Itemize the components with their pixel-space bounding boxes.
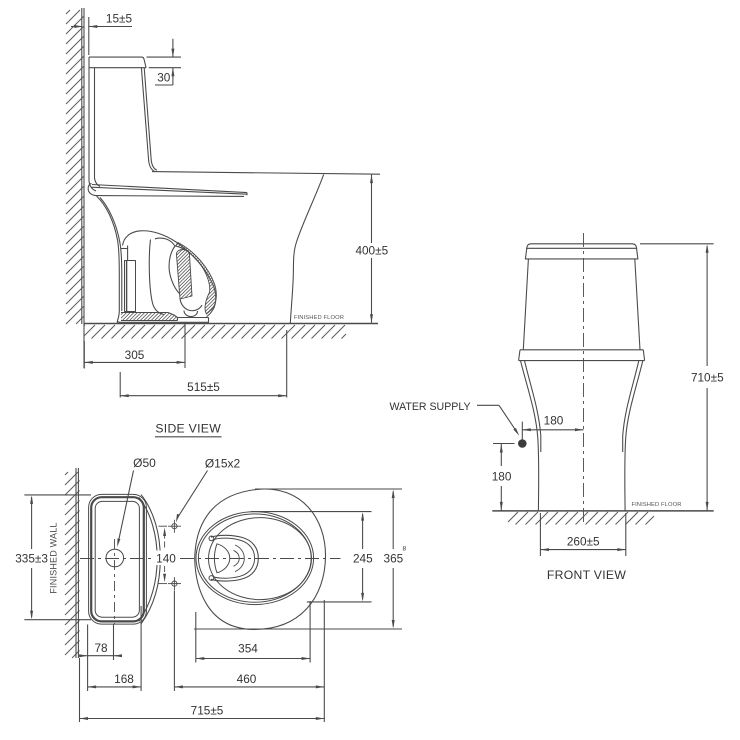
svg-text:FINISHED FLOOR: FINISHED FLOOR	[631, 502, 681, 508]
svg-text:354: 354	[238, 642, 258, 656]
svg-text:305: 305	[125, 348, 145, 362]
svg-text:FRONT VIEW: FRONT VIEW	[547, 568, 626, 582]
svg-text:15±5: 15±5	[106, 12, 133, 26]
svg-text:180: 180	[492, 470, 512, 484]
svg-text:FINISHED WALL: FINISHED WALL	[49, 522, 59, 593]
svg-text:8: 8	[403, 546, 407, 553]
svg-text:260±5: 260±5	[567, 534, 600, 548]
svg-text:245: 245	[353, 552, 373, 566]
svg-text:168: 168	[114, 672, 134, 686]
svg-text:30: 30	[157, 70, 171, 84]
svg-text:FINISHED FLOOR: FINISHED FLOOR	[294, 315, 344, 321]
svg-text:460: 460	[237, 672, 257, 686]
svg-text:Ø50: Ø50	[133, 456, 156, 470]
svg-text:140: 140	[156, 552, 176, 566]
svg-text:78: 78	[94, 641, 108, 655]
svg-text:515±5: 515±5	[187, 380, 220, 394]
svg-text:710±5: 710±5	[691, 371, 724, 385]
svg-text:WATER SUPPLY: WATER SUPPLY	[389, 401, 470, 413]
svg-text:715±5: 715±5	[191, 703, 224, 717]
svg-text:SIDE VIEW: SIDE VIEW	[155, 422, 221, 436]
svg-text:Ø15x2: Ø15x2	[205, 457, 241, 471]
svg-text:180: 180	[544, 414, 564, 428]
svg-text:335±3: 335±3	[15, 552, 48, 566]
svg-text:400±5: 400±5	[355, 244, 388, 258]
svg-text:365: 365	[384, 552, 404, 566]
